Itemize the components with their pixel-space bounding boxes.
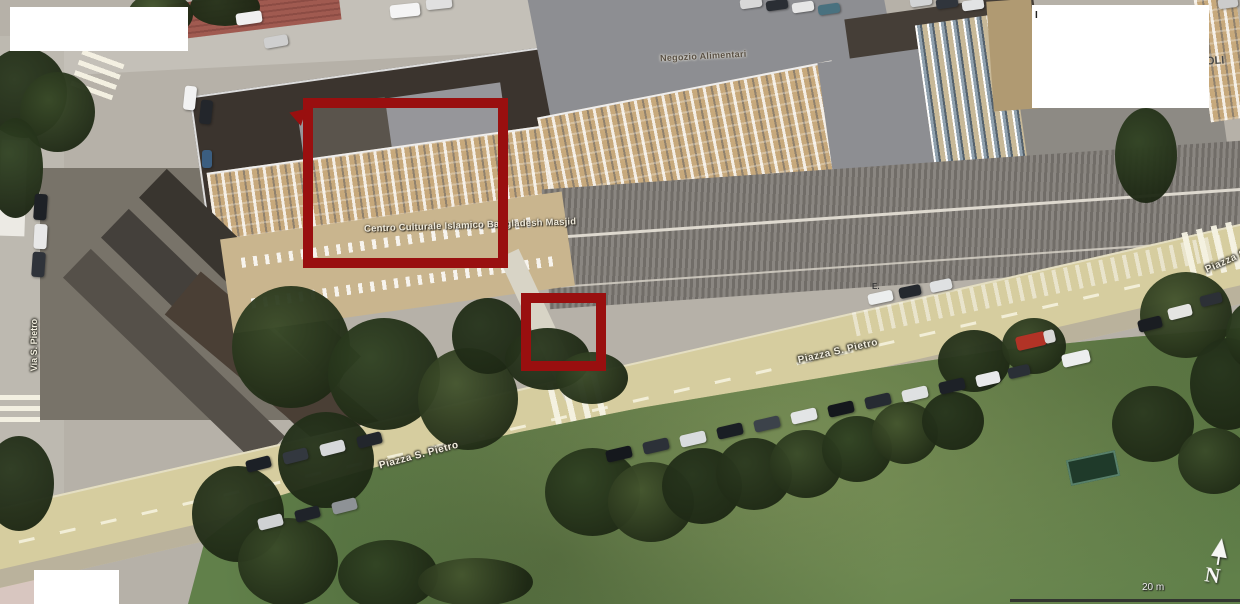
- parked-car: [901, 385, 929, 403]
- parked-car: [294, 505, 321, 523]
- parked-car: [33, 194, 48, 221]
- parked-car: [817, 3, 840, 16]
- label-via-left: Via S. Pietro: [29, 305, 39, 385]
- satellite-map-canvas[interactable]: Negozio Alimentari Centro Culturale Isla…: [0, 0, 1240, 604]
- parked-car: [867, 290, 894, 306]
- highlight-rect-building: [303, 98, 508, 268]
- parked-car: [790, 407, 818, 425]
- parked-car: [425, 0, 452, 10]
- parked-car: [961, 0, 984, 11]
- tree-canopy: [1115, 108, 1177, 203]
- scale-text: 20 m: [1142, 582, 1164, 593]
- tree-canopy: [0, 436, 54, 531]
- parked-car: [898, 284, 922, 299]
- parked-car: [33, 224, 47, 250]
- parked-car: [739, 0, 762, 9]
- tree-canopy: [418, 558, 533, 604]
- scale-bar-line: [1010, 599, 1240, 602]
- parked-car: [183, 85, 197, 110]
- parked-car: [389, 2, 420, 18]
- label-fragment-e: E.: [872, 282, 880, 291]
- redaction-box-bottom-left: [34, 570, 119, 604]
- parked-car: [1061, 349, 1091, 368]
- parked-car: [791, 1, 814, 14]
- parked-car: [1217, 0, 1238, 9]
- parked-car: [642, 437, 670, 455]
- north-arrow-icon: [1211, 537, 1230, 558]
- parked-car: [199, 99, 213, 124]
- redaction-box-top-left: [10, 7, 188, 51]
- parked-car: [31, 252, 46, 278]
- compass-letter: N: [1203, 562, 1222, 589]
- parked-car: [605, 445, 633, 463]
- tree-canopy: [1178, 428, 1240, 494]
- parked-car: [938, 377, 966, 395]
- parked-car: [716, 422, 744, 440]
- parked-car: [929, 278, 953, 293]
- compass: N: [1191, 535, 1240, 603]
- tree-canopy: [922, 392, 984, 450]
- parked-car: [935, 0, 958, 9]
- parked-car: [235, 10, 262, 26]
- parked-car: [753, 415, 781, 433]
- parked-car: [679, 430, 707, 448]
- parked-car: [765, 0, 788, 11]
- parked-car: [202, 150, 212, 168]
- label-fragment-i: I: [1035, 10, 1038, 21]
- parked-car: [909, 0, 932, 7]
- tree-canopy: [238, 518, 338, 604]
- highlight-rect-garage: [521, 293, 606, 371]
- parked-car: [827, 400, 855, 418]
- parked-car: [263, 34, 289, 49]
- redaction-box-top-right: [1032, 5, 1209, 108]
